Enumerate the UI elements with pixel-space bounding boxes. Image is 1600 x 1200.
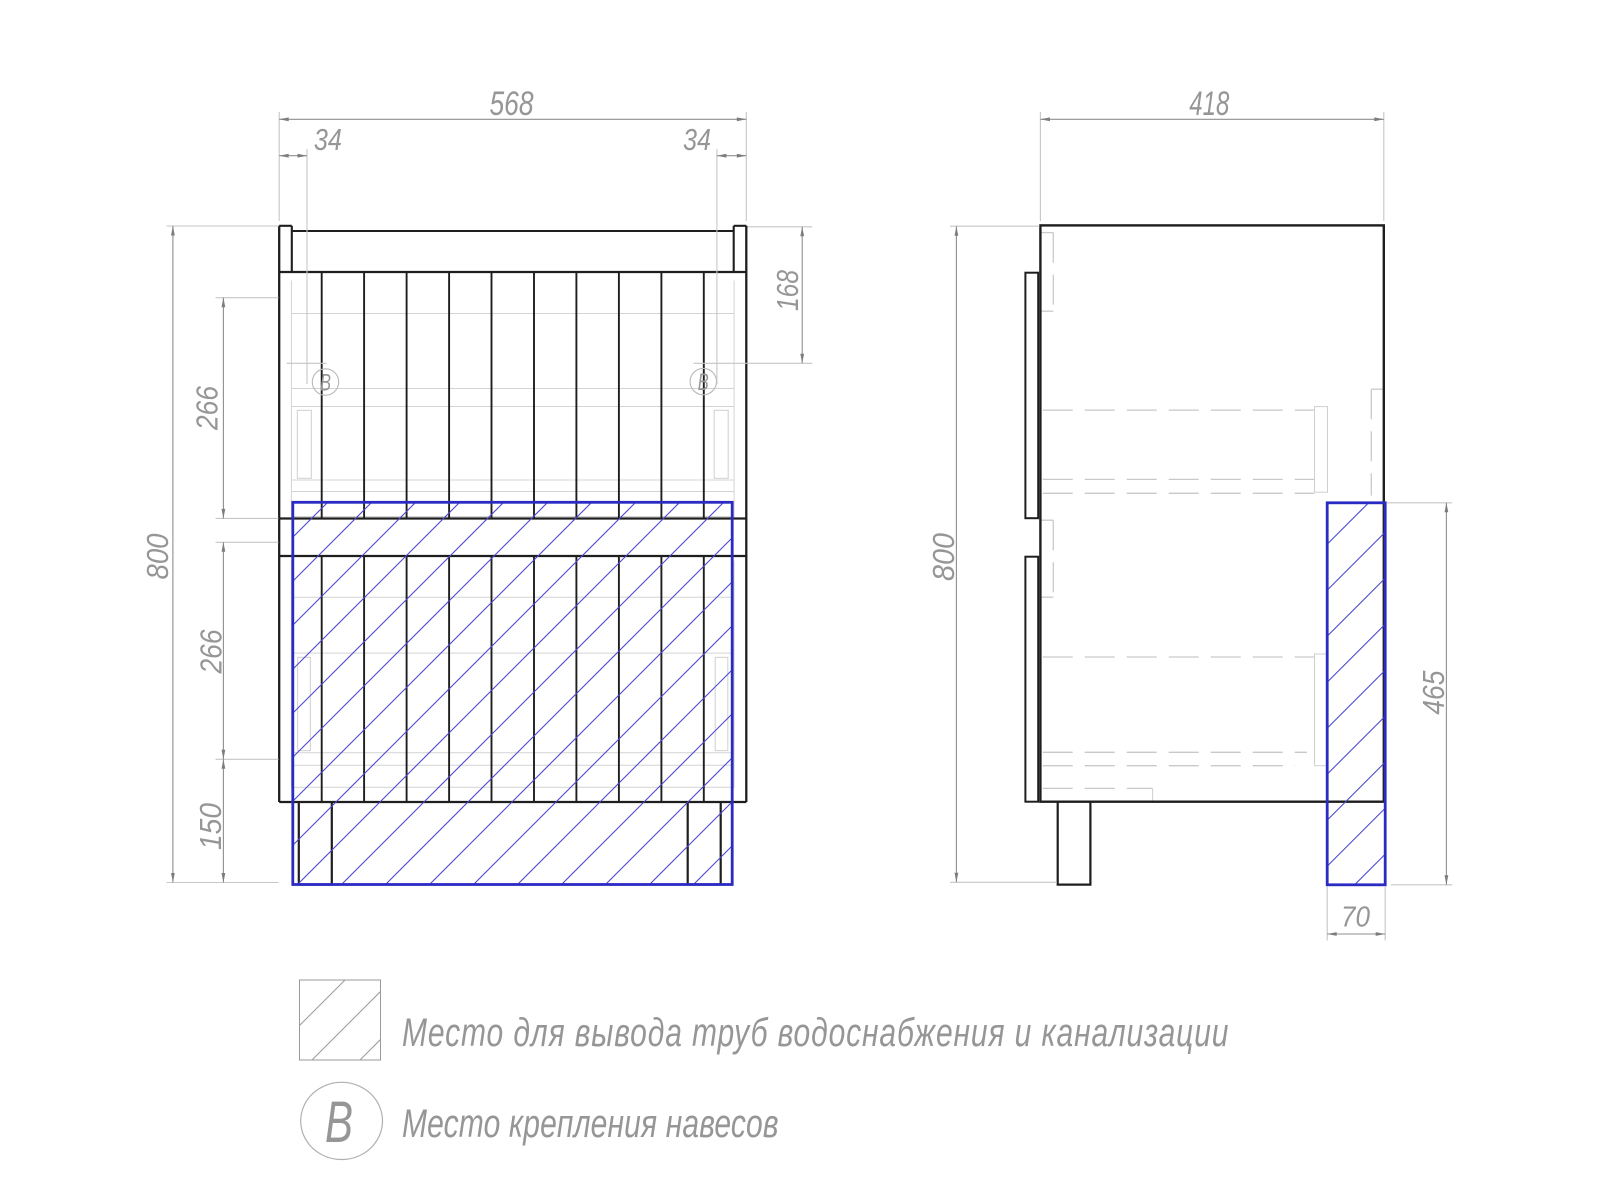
svg-text:Место для вывода труб водоснаб: Место для вывода труб водоснабжения и ка… — [402, 1011, 1229, 1055]
svg-text:B: B — [320, 370, 331, 397]
svg-text:150: 150 — [193, 803, 228, 850]
svg-text:568: 568 — [490, 85, 534, 123]
svg-text:B: B — [698, 369, 709, 396]
svg-text:34: 34 — [683, 122, 711, 157]
svg-text:B: B — [325, 1090, 353, 1155]
svg-text:418: 418 — [1189, 85, 1229, 123]
svg-text:465: 465 — [1416, 670, 1451, 715]
svg-text:266: 266 — [193, 629, 228, 674]
svg-text:266: 266 — [190, 385, 225, 430]
svg-text:34: 34 — [314, 122, 342, 157]
svg-text:70: 70 — [1341, 902, 1370, 934]
svg-text:800: 800 — [926, 533, 961, 581]
svg-text:800: 800 — [140, 534, 175, 580]
svg-text:168: 168 — [770, 269, 805, 311]
svg-text:Место крепления навесов: Место крепления навесов — [402, 1102, 779, 1146]
